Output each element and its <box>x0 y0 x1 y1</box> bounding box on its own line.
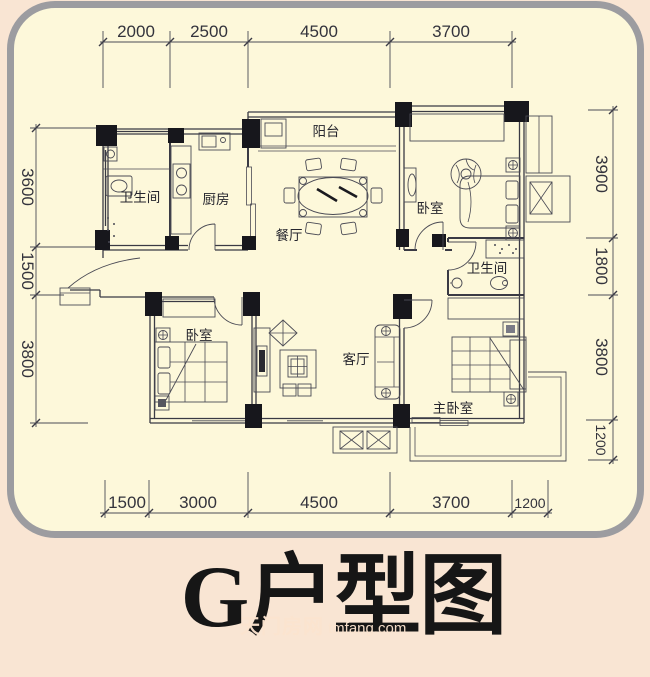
dim-bottom-1: 3000 <box>179 493 217 512</box>
dim-right-2: 3800 <box>592 338 611 376</box>
room-label-dining: 餐厅 <box>276 228 303 243</box>
dim-left-1: 1500 <box>18 252 37 290</box>
dim-top-3: 3700 <box>432 22 470 41</box>
dim-top-1: 2500 <box>190 22 228 41</box>
room-label-kitchen: 厨房 <box>203 192 230 207</box>
room-label-master: 主卧室 <box>433 400 474 416</box>
room-label-balcony: 阳台 <box>313 124 340 139</box>
floorplan-page: 2000 2500 4500 3700 1500 3000 4500 3700 … <box>0 0 650 677</box>
dim-left-0: 3600 <box>18 168 37 206</box>
master-balcony <box>410 372 566 461</box>
dim-top-0: 2000 <box>117 22 155 41</box>
entry-door-arc <box>68 258 140 288</box>
master-bedroom-furniture <box>448 298 526 406</box>
walls <box>70 106 524 426</box>
dimension-lines: 2000 2500 4500 3700 1500 3000 4500 3700 … <box>18 22 618 518</box>
dim-bottom-2: 4500 <box>300 493 338 512</box>
dim-right-0: 3900 <box>592 155 611 193</box>
floorplan-drawing: 2000 2500 4500 3700 1500 3000 4500 3700 … <box>0 0 650 540</box>
furniture <box>104 114 570 461</box>
title-block: G户型图 <box>0 546 650 666</box>
room-label-living: 客厅 <box>343 351 370 367</box>
room-label-bedroom-1: 卧室 <box>417 200 444 216</box>
room-label-bathroom-2: 卫生间 <box>467 261 508 276</box>
bay-window-ac <box>526 116 570 222</box>
ac-platform <box>333 427 397 453</box>
balcony-washer <box>261 119 286 148</box>
kitchen-fixtures <box>171 133 230 234</box>
room-label-bathroom-1: 卫生间 <box>120 190 161 205</box>
living-room-furniture <box>254 320 400 399</box>
dining-table <box>284 158 382 235</box>
dim-bottom-0: 1500 <box>108 493 146 512</box>
dim-right-3: 1200 <box>593 424 609 455</box>
doors <box>60 222 476 328</box>
bathroom-1-door <box>189 224 215 250</box>
dim-bottom-3: 3700 <box>432 493 470 512</box>
watermark: 天门房网tmfang.com <box>240 610 406 639</box>
bedroom-1-furniture <box>404 114 520 240</box>
watermark-site-name: 天门房网 <box>240 616 324 638</box>
bedroom-2-door <box>214 297 242 325</box>
dim-right-1: 1800 <box>592 247 611 285</box>
dim-bottom-4: 1200 <box>514 495 545 511</box>
room-label-bedroom-2: 卧室 <box>186 327 213 343</box>
bedroom-2-furniture <box>155 299 227 410</box>
dim-left-2: 3800 <box>18 340 37 378</box>
watermark-site-url: tmfang.com <box>328 620 406 637</box>
dim-top-2: 4500 <box>300 22 338 41</box>
